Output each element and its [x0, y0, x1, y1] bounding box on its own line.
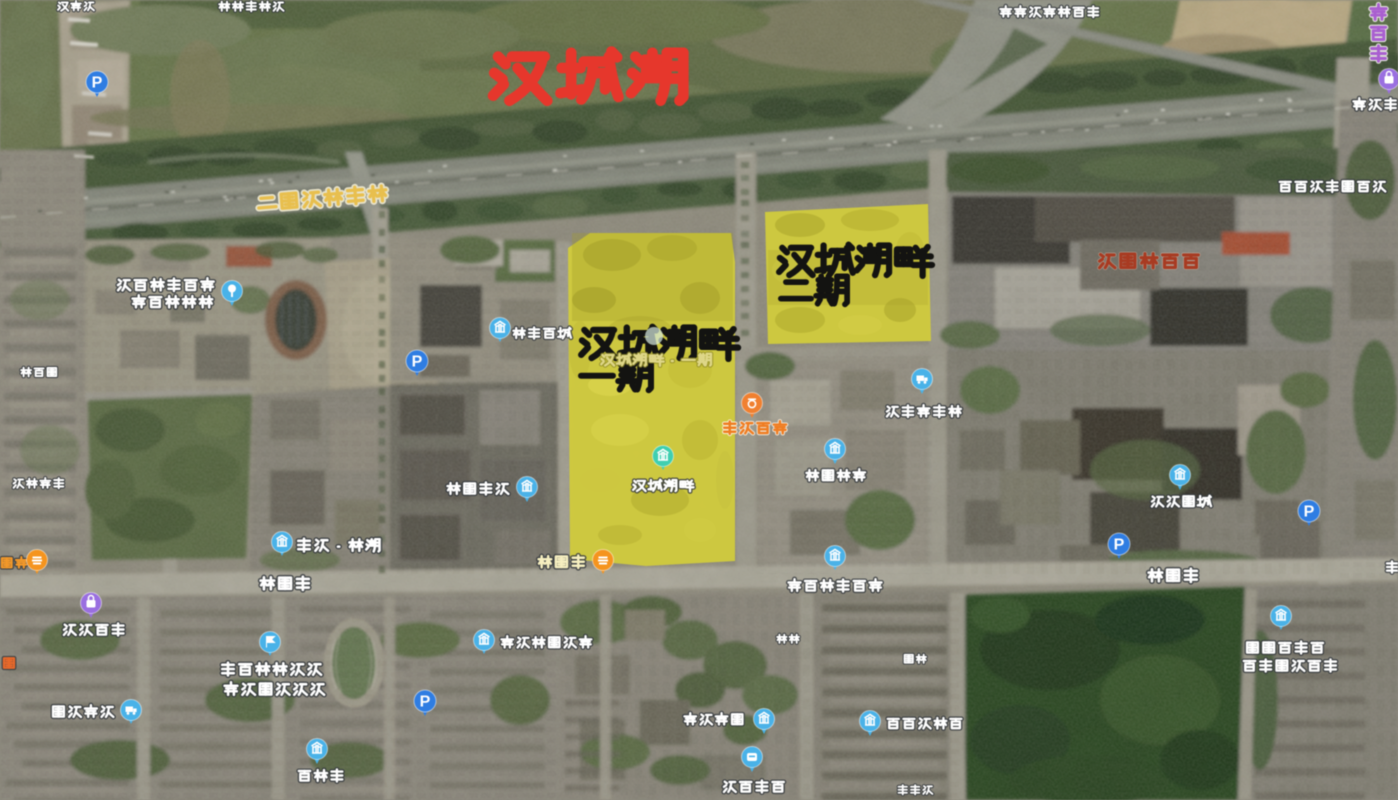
svg-text:P: P	[92, 75, 103, 92]
svg-text:P: P	[412, 354, 423, 371]
svg-text:P: P	[1114, 537, 1125, 554]
svg-text:P: P	[420, 694, 431, 711]
svg-text:P: P	[1304, 504, 1315, 521]
